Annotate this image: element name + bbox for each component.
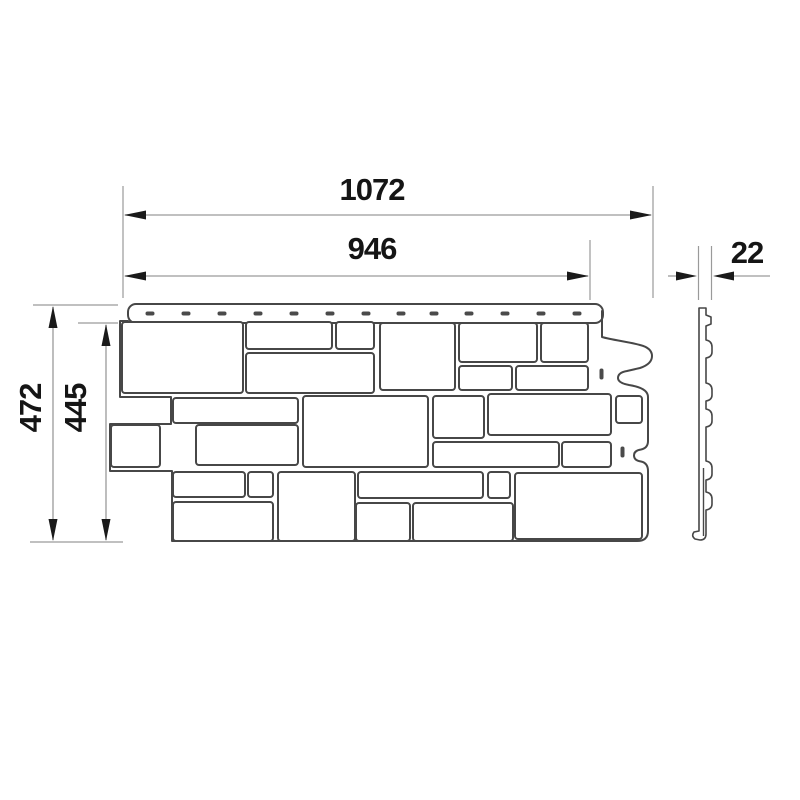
stone-block [173, 398, 298, 423]
stone-block [488, 472, 510, 498]
stone-block [433, 396, 484, 438]
edge-slot [600, 369, 604, 380]
nail-slot [537, 312, 546, 316]
nail-slot [146, 312, 155, 316]
stone-block [246, 322, 332, 349]
stone-block [459, 366, 512, 390]
nail-slot [465, 312, 474, 316]
arrow-right [567, 272, 589, 281]
dim-thickness: 22 [668, 235, 770, 300]
stone-block [173, 472, 245, 497]
nail-slot [430, 312, 439, 316]
dim-label-overall-height: 472 [13, 384, 48, 433]
stone-block [433, 442, 559, 467]
nail-slot [290, 312, 299, 316]
nail-slot [573, 312, 582, 316]
stone-band-upper [122, 322, 588, 393]
technical-drawing: 1072 946 22 472 445 [0, 0, 800, 800]
stone-block [196, 425, 298, 465]
arrow-right [713, 272, 734, 281]
stone-block [562, 442, 611, 467]
dim-label-exposed-width: 946 [348, 231, 397, 266]
stone-block [413, 503, 513, 541]
stone-block [248, 472, 273, 497]
side-profile-outline [693, 308, 712, 540]
stone-block [122, 322, 243, 393]
stone-block [616, 396, 642, 423]
stone-block [173, 502, 273, 541]
arrow-left [124, 211, 146, 220]
stone-block [111, 425, 160, 467]
edge-slot [621, 447, 625, 458]
stone-band-lower [173, 472, 642, 541]
arrow-down [102, 519, 111, 541]
dim-label-overall-width: 1072 [340, 172, 405, 207]
drawing-canvas: 1072 946 22 472 445 [0, 0, 800, 800]
nail-slot [182, 312, 191, 316]
stone-block [459, 323, 537, 362]
nail-slot [397, 312, 406, 316]
dim-label-exposed-height: 445 [58, 383, 93, 432]
arrow-left [676, 272, 697, 281]
arrow-down [49, 519, 58, 541]
stone-block [278, 472, 355, 541]
arrow-up [102, 324, 111, 346]
dim-exposed-width: 946 [124, 231, 590, 300]
arrow-right [630, 211, 652, 220]
nail-slot [501, 312, 510, 316]
stone-block [303, 396, 428, 467]
stone-block [336, 322, 374, 349]
stone-block [515, 473, 642, 539]
nail-slot [326, 312, 335, 316]
side-view [693, 308, 712, 540]
nail-slot [254, 312, 263, 316]
stone-block [246, 353, 374, 393]
nail-slot [362, 312, 371, 316]
front-view [110, 304, 652, 541]
stone-block [488, 394, 611, 435]
stone-block [358, 472, 483, 498]
stone-block [541, 323, 588, 362]
stone-band-middle [111, 394, 642, 467]
arrow-up [49, 306, 58, 328]
arrow-left [124, 272, 146, 281]
stone-block [356, 503, 410, 541]
nail-slot [218, 312, 227, 316]
dim-label-thickness: 22 [731, 235, 763, 270]
stone-block [380, 323, 455, 390]
stone-block [516, 366, 588, 390]
